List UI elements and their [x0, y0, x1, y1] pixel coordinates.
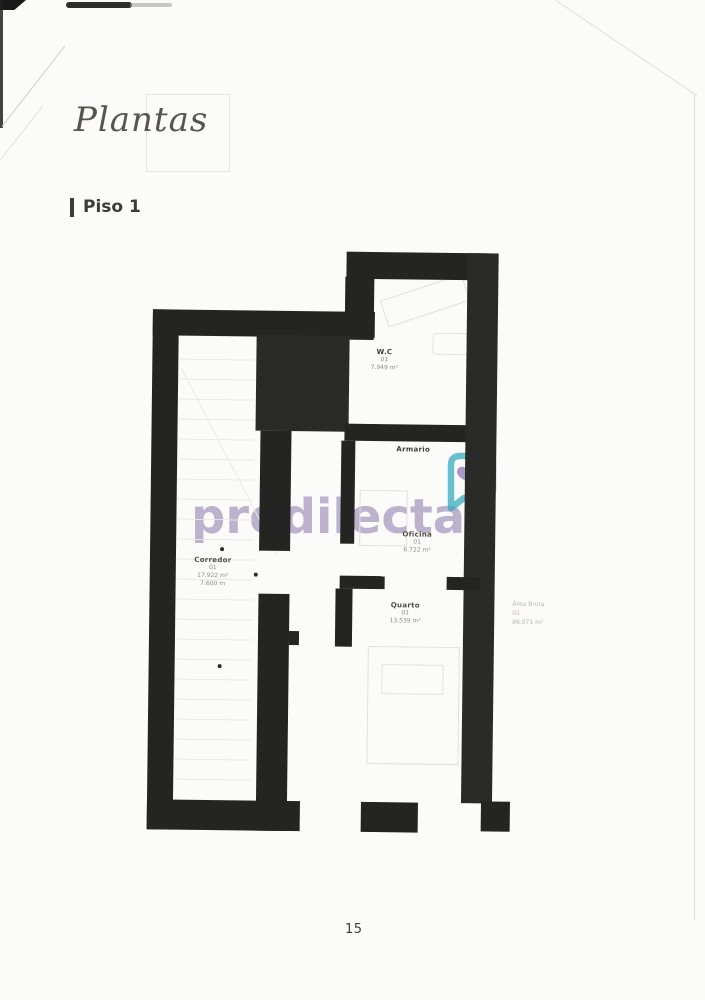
room-area: 7.949 m² — [352, 364, 416, 373]
wall-segment-right — [461, 253, 499, 803]
wall-segment-bottom-mid — [361, 802, 418, 833]
wc-fixture-outline — [380, 274, 470, 328]
room-name: Armario — [381, 445, 445, 454]
scan-streak-artifact — [130, 3, 172, 7]
room-area: 6.722 m² — [385, 546, 449, 555]
wall-segment-mid-nub — [289, 631, 299, 645]
plan-point-mark — [254, 573, 258, 577]
scan-edge-artifact — [0, 0, 3, 128]
room-label-corredor: Corredor 01 17.922 m² 7.600 m — [181, 556, 245, 589]
room-label-oficina: Oficina 01 6.722 m² — [385, 530, 449, 555]
wall-segment-quarto-left-return — [335, 589, 353, 647]
scan-crease-line — [2, 46, 66, 127]
room-label-armario: Armario — [381, 445, 445, 454]
annotation-area: 86.071 m² — [512, 618, 566, 628]
plan-point-mark — [218, 664, 222, 668]
room-dimension: 7.600 m — [181, 580, 245, 589]
scan-page-edge-line — [694, 95, 695, 920]
wall-segment-right-foot — [481, 801, 510, 831]
scan-crease-line — [0, 105, 43, 161]
annotation-label: Área Bruta — [512, 600, 566, 610]
plan-point-mark — [220, 547, 224, 551]
wall-segment-oficina-left — [340, 441, 355, 544]
room-area: 13.539 m² — [373, 617, 437, 626]
page-title: Plantas — [74, 100, 208, 140]
wall-segment-mid-upper — [259, 431, 291, 551]
wall-segment-mid-band — [256, 335, 350, 432]
floorplan-piso1: W.C 01 7.949 m² Armario Oficina 01 6.722… — [144, 247, 521, 836]
gross-area-annotation: Área Bruta 01 86.071 m² — [512, 600, 566, 628]
bed-pillow-line — [381, 664, 443, 695]
scan-page-edge-line — [556, 0, 697, 96]
scan-streak-artifact — [66, 2, 132, 8]
wall-segment-quarto-top-right — [447, 577, 480, 590]
wall-segment-armario — [344, 424, 472, 443]
wall-segment-mid-lower — [256, 594, 290, 831]
wall-segment-quarto-top-left — [340, 576, 385, 590]
section-heading-piso1: Piso 1 — [70, 198, 141, 217]
wc-sink-outline — [432, 333, 468, 355]
scan-corner-artifact — [0, 0, 26, 10]
page-number: 15 — [345, 922, 363, 937]
room-label-quarto: Quarto 01 13.539 m² — [373, 601, 437, 626]
room-label-wc: W.C 01 7.949 m² — [352, 348, 416, 373]
wall-segment-bottom-left — [147, 799, 300, 831]
